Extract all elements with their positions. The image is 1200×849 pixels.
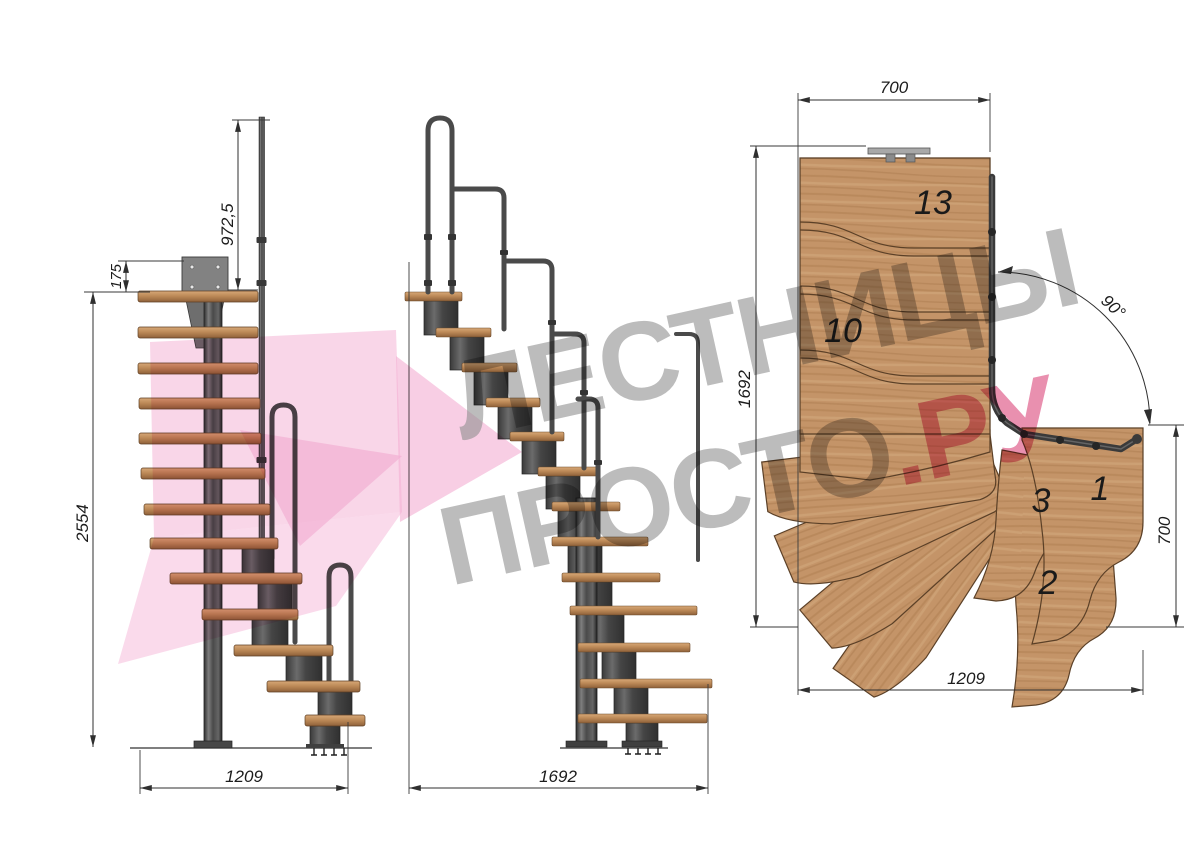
arc-arrow: [1144, 409, 1152, 425]
turn-angle-label: 90°: [1097, 291, 1129, 323]
stair-module: [310, 726, 340, 746]
bolt-hole: [190, 265, 194, 269]
module-base-plate: [306, 744, 344, 748]
anchor-bolt: [321, 748, 327, 755]
wall-bracket-leg: [886, 154, 895, 162]
step: [578, 643, 690, 652]
step: [570, 606, 697, 615]
anchor-bolt: [341, 748, 347, 755]
technical-drawing-canvas: 972,5 175 2554 1209 1692 700 1692 700 12…: [0, 0, 1200, 849]
anchor-bolt: [311, 748, 317, 755]
module-base-plate: [622, 741, 662, 747]
step: [138, 291, 258, 302]
column-base-plate: [194, 741, 232, 748]
rail-collar: [448, 280, 456, 286]
step: [305, 715, 365, 726]
step-label-2: 2: [1038, 564, 1058, 602]
stair-module: [626, 723, 658, 743]
bolt-hole: [216, 265, 220, 269]
step: [234, 645, 333, 656]
step-label-3: 3: [1032, 482, 1051, 520]
anchor-bolt: [331, 748, 337, 755]
step-label-1: 1: [1091, 470, 1110, 508]
stair-module: [318, 692, 352, 717]
anchor-bolt: [635, 748, 641, 754]
anchor-bolt: [625, 748, 631, 754]
rail-collar: [448, 234, 456, 240]
step: [580, 679, 712, 688]
step: [578, 714, 707, 723]
wall-bracket-leg: [906, 154, 915, 162]
post-collar: [257, 280, 267, 286]
dim-front-width: 1209: [225, 767, 263, 786]
watermark-logo-block: [150, 330, 402, 538]
rail-end-cap: [1132, 434, 1142, 444]
anchor-bolts: [625, 748, 661, 754]
stair-module: [286, 656, 322, 683]
dim-side-length: 1692: [539, 767, 577, 786]
step-label-13: 13: [914, 184, 952, 222]
rail-joint: [1092, 442, 1100, 450]
dim-top-offset: 175: [108, 263, 125, 289]
staircase-drawing: 972,5 175 2554 1209 1692 700 1692 700 12…: [0, 0, 1200, 849]
rail-collar: [424, 280, 432, 286]
anchor-bolts: [311, 748, 347, 755]
column-base-plate: [566, 741, 607, 747]
dim-total-height: 2554: [73, 504, 92, 543]
handrail-loop: [428, 118, 452, 292]
anchor-bolt: [655, 748, 661, 754]
anchor-bolt: [645, 748, 651, 754]
step: [267, 681, 360, 692]
dim-plan-right-depth: 700: [1155, 516, 1174, 545]
bolt-hole: [216, 285, 220, 289]
dim-plan-bottom-width: 1209: [947, 669, 985, 688]
rail-collar: [500, 250, 508, 255]
dim-rail-height: 972,5: [218, 203, 237, 246]
step: [138, 327, 258, 338]
post-collar: [257, 237, 267, 243]
rail-collar: [424, 234, 432, 240]
handrail-segment: [452, 189, 504, 329]
dim-plan-top-width: 700: [880, 78, 909, 97]
bolt-hole: [190, 285, 194, 289]
wall-bracket: [868, 148, 930, 154]
